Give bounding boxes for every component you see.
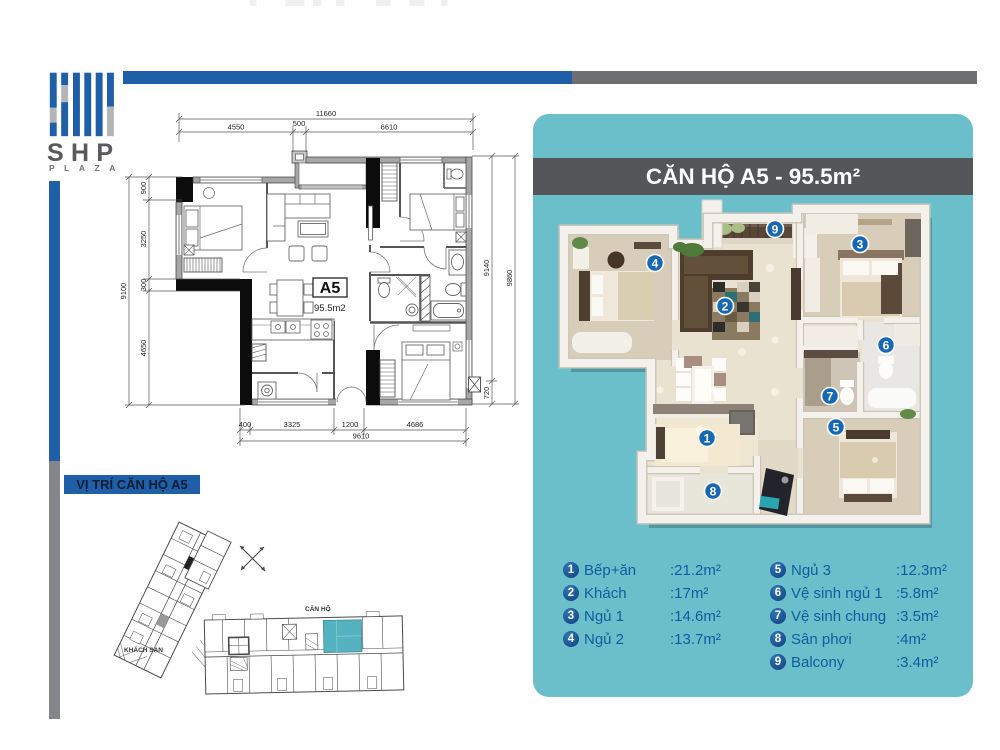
svg-text:95.5m2: 95.5m2 [314,303,346,314]
svg-text:CĂN HỘ: CĂN HỘ [305,604,331,613]
svg-text:720: 720 [482,387,491,400]
svg-text:2: 2 [722,300,729,314]
svg-text:9610: 9610 [353,432,370,441]
svg-text:4686: 4686 [407,420,424,429]
svg-text:A5: A5 [320,280,341,297]
svg-text:7: 7 [827,390,834,404]
svg-text:3: 3 [857,238,864,252]
svg-text:9860: 9860 [505,270,514,287]
svg-text:6: 6 [883,339,890,353]
svg-text:9140: 9140 [482,260,491,277]
svg-text:9100: 9100 [119,283,128,300]
svg-text:3325: 3325 [284,420,301,429]
svg-text:11660: 11660 [316,109,336,118]
svg-text:4: 4 [652,257,659,271]
svg-text:3250: 3250 [139,231,148,248]
svg-text:1: 1 [704,432,711,446]
svg-text:6610: 6610 [381,123,398,132]
svg-text:400: 400 [239,420,252,429]
svg-text:1200: 1200 [342,420,359,429]
svg-text:300: 300 [139,279,148,292]
svg-text:900: 900 [139,182,148,195]
svg-text:500: 500 [293,119,306,128]
svg-text:4650: 4650 [139,340,148,357]
svg-text:4550: 4550 [228,123,245,132]
svg-text:5: 5 [833,421,840,435]
svg-text:8: 8 [710,485,717,499]
svg-text:KHÁCH SẠN: KHÁCH SẠN [124,645,163,654]
svg-text:9: 9 [772,223,779,237]
